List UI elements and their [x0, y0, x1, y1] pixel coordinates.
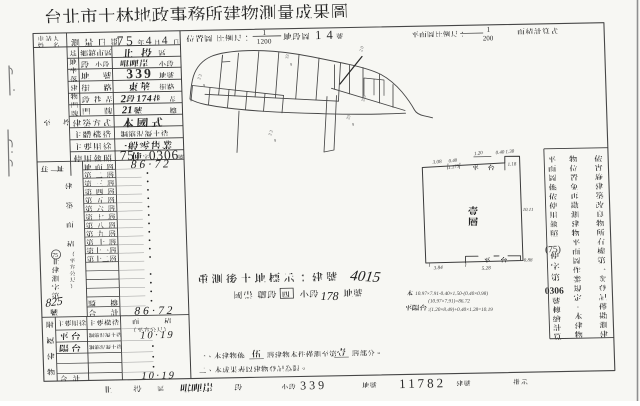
- svg-text:200: 200: [483, 34, 494, 42]
- svg-text:339: 339: [300, 378, 327, 393]
- svg-text:4015: 4015: [348, 267, 384, 286]
- svg-text:5.28: 5.28: [481, 265, 491, 272]
- svg-text:11782: 11782: [399, 375, 446, 391]
- svg-text:10·19: 10·19: [139, 330, 175, 342]
- svg-text:75: 75: [117, 33, 136, 48]
- svg-text:825: 825: [44, 293, 64, 310]
- svg-text:10·19: 10·19: [140, 370, 176, 382]
- svg-text:21: 21: [121, 105, 133, 116]
- svg-text:86·72: 86·72: [130, 157, 173, 171]
- svg-text:1: 1: [262, 28, 266, 37]
- svg-text:75: 75: [52, 253, 58, 259]
- svg-text:86·72: 86·72: [133, 304, 176, 318]
- svg-text:339: 339: [126, 66, 153, 81]
- svg-text:10.97×7.91-0.40×1.50-(0.40×0.9: 10.97×7.91-0.40×1.50-(0.40×0.98): [415, 290, 489, 297]
- svg-text:0.88: 0.88: [523, 259, 533, 264]
- svg-text:3.08: 3.08: [432, 159, 442, 166]
- svg-text:10.11: 10.11: [522, 208, 534, 213]
- svg-text:3.84: 3.84: [433, 265, 443, 272]
- svg-text:(75): (75): [545, 244, 561, 255]
- svg-text:1: 1: [486, 25, 490, 34]
- svg-text:0306: 0306: [545, 286, 565, 296]
- svg-text::(1.20×8.49)+0.40×1.28=10.19: :(1.20×8.49)+0.40×1.28=10.19: [428, 306, 494, 313]
- svg-text:174: 174: [136, 94, 153, 104]
- svg-text:1.18: 1.18: [507, 162, 517, 168]
- svg-text:4: 4: [162, 35, 168, 47]
- svg-text:178: 178: [319, 289, 339, 303]
- svg-text:1200: 1200: [257, 37, 272, 45]
- svg-text:(10.97×7.91)=86.72: (10.97×7.91)=86.72: [428, 298, 471, 305]
- svg-text:4: 4: [146, 35, 152, 47]
- svg-text:1 4: 1 4: [315, 28, 334, 42]
